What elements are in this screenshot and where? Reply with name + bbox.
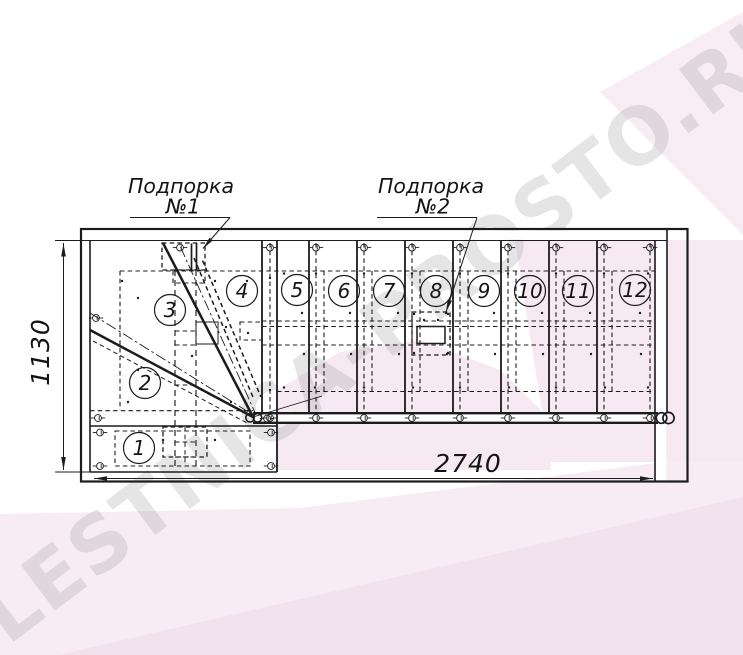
fastener-dot (590, 353, 592, 355)
fastener-dot (542, 353, 544, 355)
fastener-dot (459, 386, 461, 388)
fastener-dot (230, 401, 232, 403)
fastener-dot (363, 386, 365, 388)
fastener-dot (640, 353, 642, 355)
step-number: 3 (164, 298, 177, 322)
step-marker: 1 (124, 433, 155, 464)
screw-icon (89, 315, 103, 322)
step-number: 5 (291, 278, 304, 302)
fastener-dot (269, 389, 271, 391)
screw-icon (93, 429, 107, 436)
fastener-dot (639, 312, 641, 314)
fastener-dot (493, 312, 495, 314)
step-marker: 2 (130, 368, 161, 399)
step-marker: 11 (563, 276, 594, 307)
fastener-dot (541, 312, 543, 314)
fastener-dot (411, 272, 413, 274)
fastener-dot (508, 386, 510, 388)
fastener-dot (301, 312, 303, 314)
fastener-dot (225, 326, 227, 328)
support-beam-2 (90, 330, 253, 417)
step-marker: 5 (282, 275, 313, 306)
fastener-dot (412, 386, 414, 388)
fastener-dot (647, 386, 649, 388)
fastener-dot (555, 272, 557, 274)
fastener-dot (191, 355, 193, 357)
fastener-dot (214, 439, 216, 441)
staircase-plan-drawing: LESTNICA-PROSTO.RU (0, 0, 743, 655)
fastener-dot (283, 272, 285, 274)
fastener-dot (555, 386, 557, 388)
fastener-dot (494, 353, 496, 355)
screw-icon (173, 244, 187, 251)
fastener-dot (398, 353, 400, 355)
support2-label-line2: №2 (415, 195, 450, 219)
fastener-dot (647, 272, 649, 274)
dim-arrow-up (61, 244, 66, 257)
beam2-axis-line (90, 313, 254, 416)
step-marker: 6 (329, 276, 360, 307)
screw-icon (91, 415, 105, 422)
fastener-dot (137, 297, 139, 299)
fastener-dot (363, 272, 365, 274)
step-number: 8 (430, 279, 443, 303)
fastener-dot (121, 280, 123, 282)
fastener-dot (314, 386, 316, 388)
support1-label-line2: №1 (165, 195, 200, 219)
step-marker: 12 (620, 275, 651, 306)
fastener-dot (303, 353, 305, 355)
drawing-canvas: LESTNICA-PROSTO.RU (0, 0, 743, 655)
dim-height-label: 1130 (26, 318, 55, 386)
step-marker: 3 (155, 295, 186, 326)
fastener-dot (603, 272, 605, 274)
fastener-dot (247, 332, 249, 334)
dim-arrow-left (94, 476, 107, 481)
step-marker: 10 (515, 276, 546, 307)
dim-arrow-down (61, 457, 66, 470)
step-number: 6 (338, 279, 351, 303)
step-number: 1 (133, 436, 146, 460)
fastener-dot (127, 401, 129, 403)
screw-icon (93, 463, 107, 470)
fastener-dot (445, 312, 447, 314)
step-number: 9 (478, 279, 491, 303)
fastener-dot (349, 312, 351, 314)
step-number: 7 (383, 279, 396, 303)
step-number: 4 (236, 279, 249, 303)
fastener-dot (283, 386, 285, 388)
fastener-dot (446, 353, 448, 355)
fastener-dot (350, 353, 352, 355)
fastener-dot (162, 439, 164, 441)
step-marker: 4 (227, 276, 258, 307)
step-number: 12 (622, 278, 647, 302)
dim-width-label: 2740 (434, 449, 502, 478)
fastener-dot (269, 277, 271, 279)
step-number: 11 (565, 279, 590, 303)
fastener-dot (604, 386, 606, 388)
fastener-dot (507, 272, 509, 274)
small-block-hidden (240, 322, 262, 340)
fastener-dot (315, 272, 317, 274)
fastener-dot (589, 312, 591, 314)
step-number: 10 (517, 279, 542, 303)
fastener-dot (397, 312, 399, 314)
step-number: 2 (139, 371, 152, 395)
fastener-dot (214, 280, 216, 282)
